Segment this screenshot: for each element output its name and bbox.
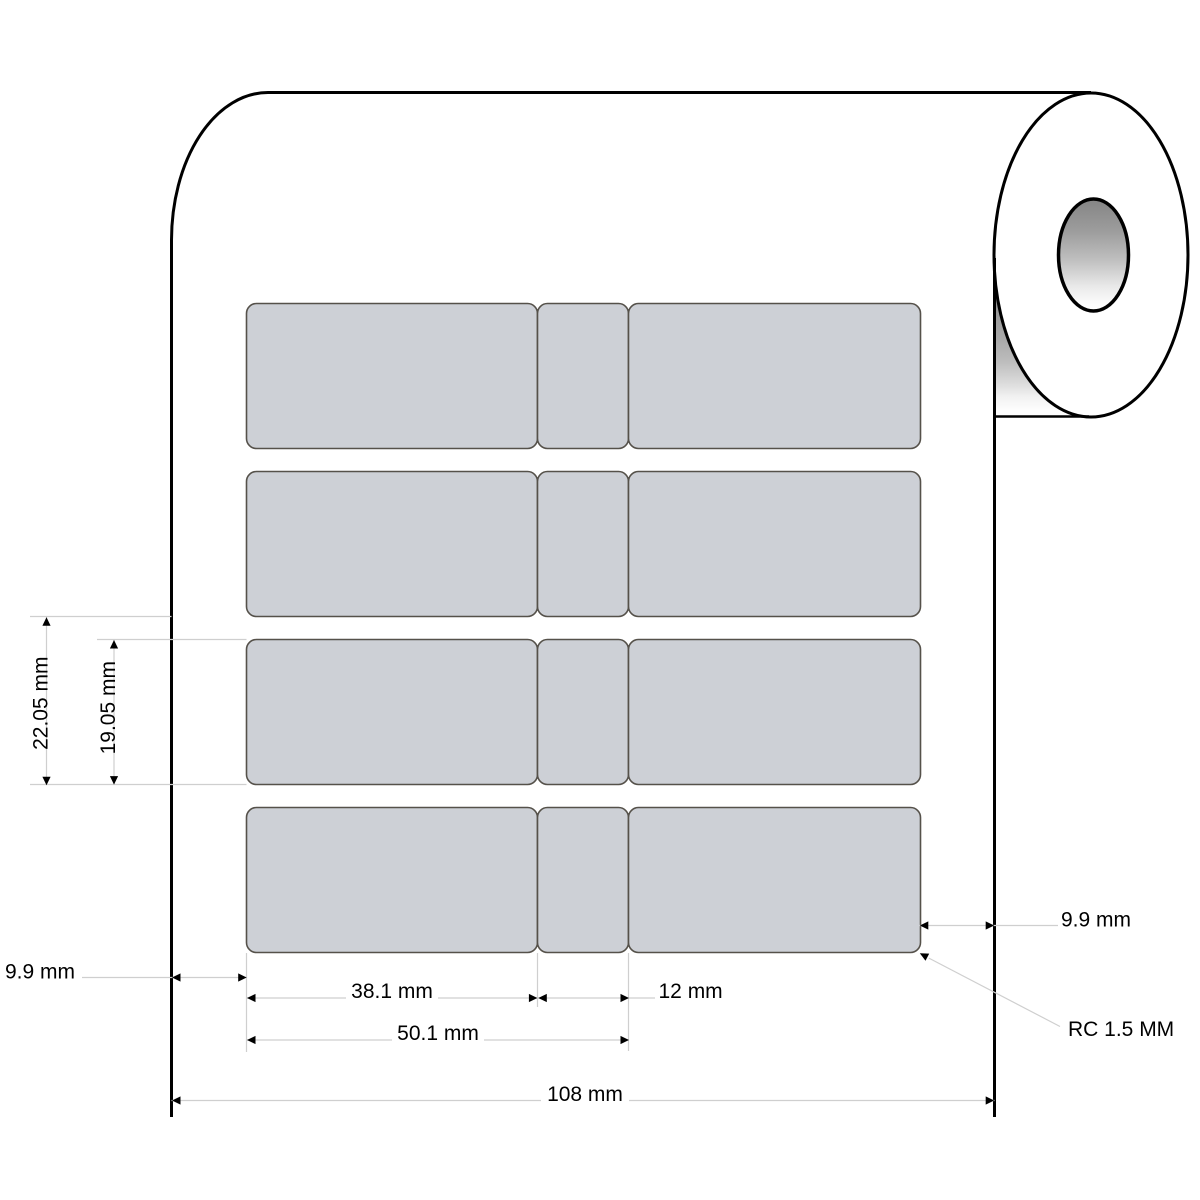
svg-text:19.05 mm: 19.05 mm <box>97 661 120 754</box>
svg-text:108 mm: 108 mm <box>547 1083 623 1106</box>
svg-text:12 mm: 12 mm <box>659 980 723 1003</box>
svg-text:RC 1.5 MM: RC 1.5 MM <box>1068 1018 1174 1041</box>
svg-text:9.9 mm: 9.9 mm <box>1061 909 1131 932</box>
svg-text:9.9 mm: 9.9 mm <box>5 961 75 984</box>
svg-text:38.1 mm: 38.1 mm <box>351 980 433 1003</box>
svg-text:22.05 mm: 22.05 mm <box>30 657 53 750</box>
svg-text:50.1 mm: 50.1 mm <box>397 1022 479 1045</box>
